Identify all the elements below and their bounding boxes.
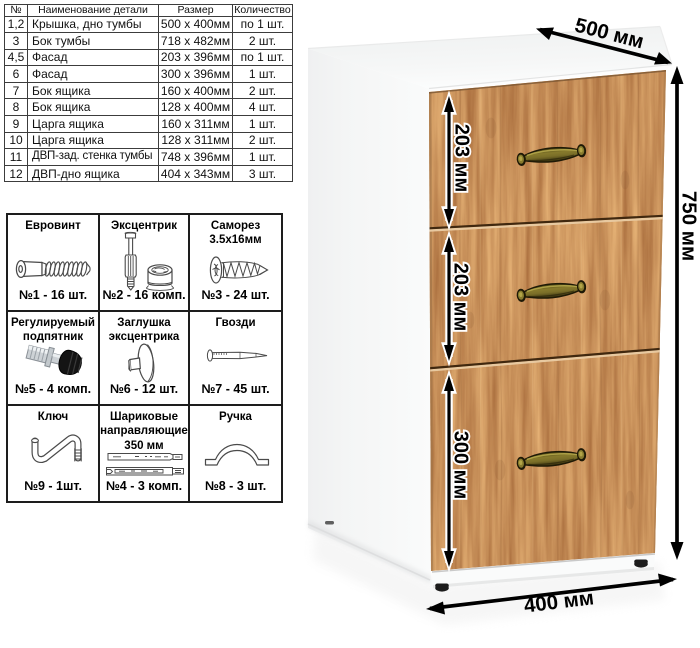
svg-text:203 мм: 203 мм — [451, 124, 473, 193]
svg-text:203 мм: 203 мм — [450, 263, 472, 332]
svg-text:750 мм: 750 мм — [678, 191, 700, 261]
svg-text:300 мм: 300 мм — [450, 431, 472, 500]
